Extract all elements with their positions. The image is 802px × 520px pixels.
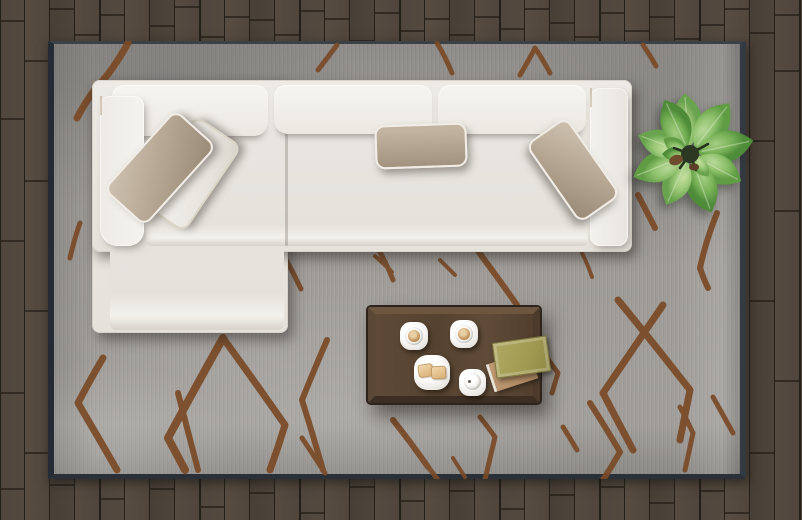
- snack-plate: [414, 355, 450, 390]
- saucer: [400, 322, 428, 350]
- toast-slice: [431, 366, 447, 380]
- coffee-table: [368, 307, 540, 403]
- throw-pillow-taupe-middle: [374, 122, 467, 169]
- espresso-cup: [455, 325, 473, 343]
- coffee-surface: [458, 328, 470, 340]
- saucer: [459, 369, 486, 396]
- saucer: [450, 320, 478, 348]
- sectional-sofa: [0, 0, 802, 520]
- lid-vent-dot: [468, 380, 471, 383]
- potted-plant: [626, 90, 754, 218]
- coffee-surface: [408, 330, 420, 342]
- living-room-top-view: [0, 0, 802, 520]
- plant-leaves: [626, 90, 754, 218]
- book-olive: [492, 335, 551, 378]
- espresso-cup: [405, 327, 423, 345]
- seat-module-seam: [285, 130, 288, 246]
- lidded-cup: [464, 373, 481, 390]
